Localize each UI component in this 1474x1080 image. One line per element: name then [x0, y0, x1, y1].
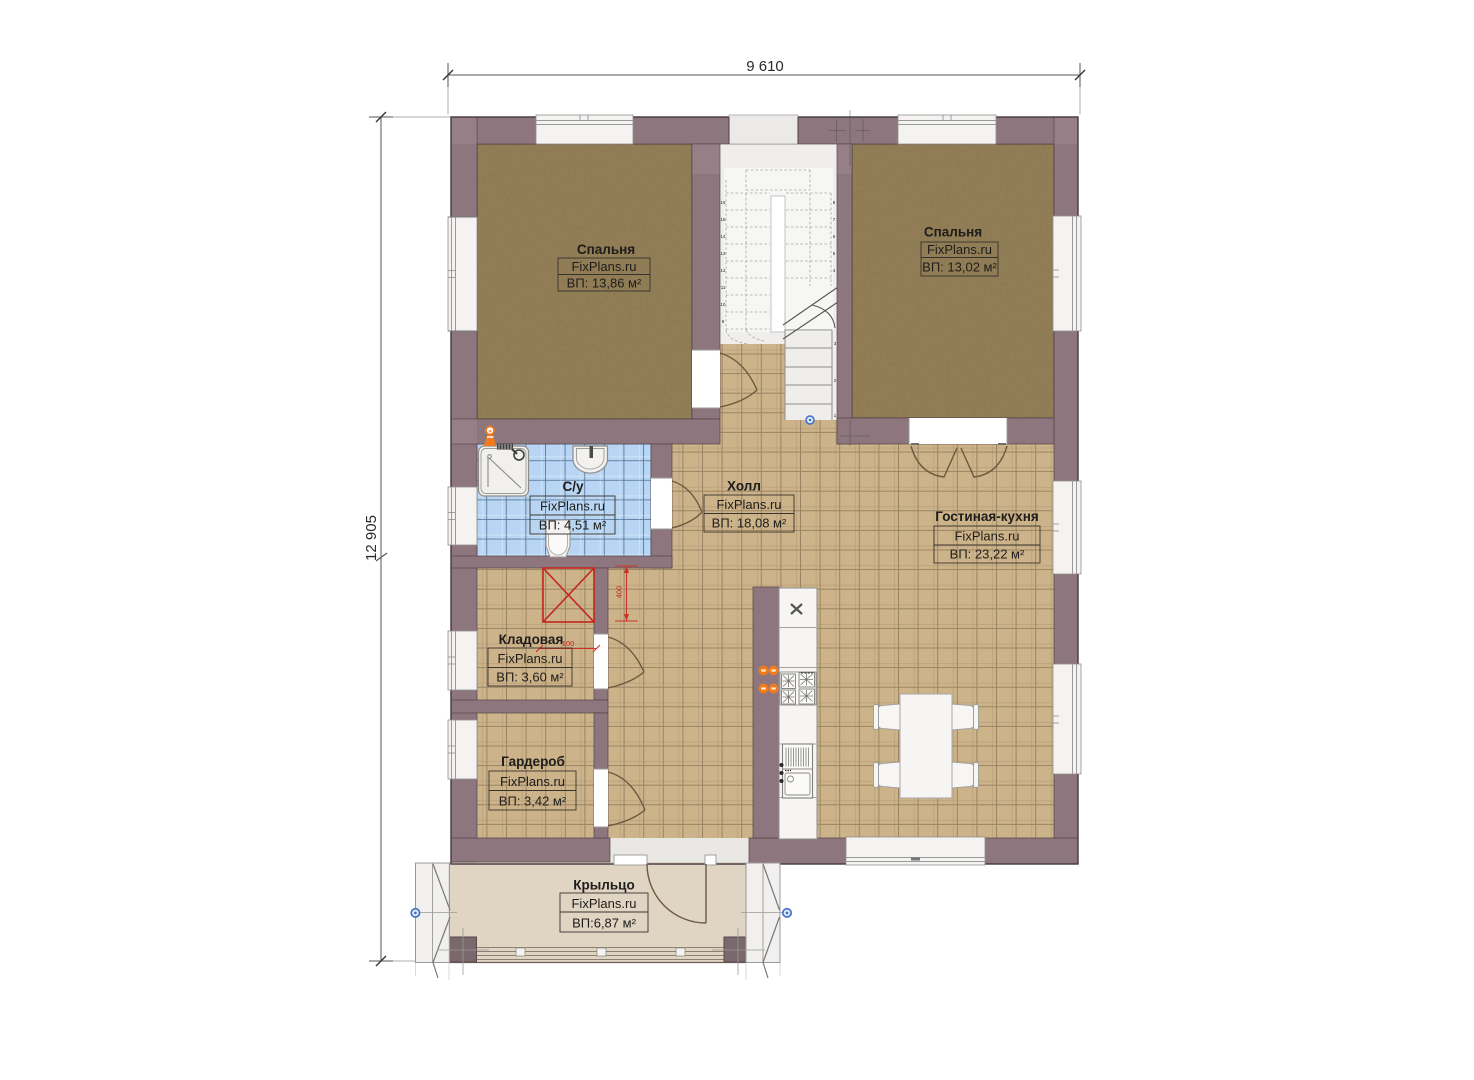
svg-text:С/у: С/у	[562, 479, 584, 494]
svg-text:9 610: 9 610	[746, 58, 784, 75]
svg-text:Крыльцо: Крыльцо	[573, 878, 634, 893]
svg-text:Холл: Холл	[727, 479, 761, 494]
svg-text:400: 400	[615, 586, 624, 599]
svg-text:14: 14	[721, 234, 726, 239]
svg-text:100: 100	[562, 639, 575, 648]
svg-text:12: 12	[721, 268, 726, 273]
svg-text:15: 15	[721, 217, 726, 222]
svg-text:FixPlans.ru: FixPlans.ru	[716, 497, 781, 512]
svg-text:FixPlans.ru: FixPlans.ru	[571, 896, 636, 911]
svg-text:FixPlans.ru: FixPlans.ru	[540, 499, 605, 514]
svg-text:ВП: 23,22 м²: ВП: 23,22 м²	[950, 547, 1025, 562]
svg-text:Гардероб: Гардероб	[501, 754, 565, 769]
svg-text:Спальня: Спальня	[577, 242, 635, 257]
svg-text:ВП: 3,42 м²: ВП: 3,42 м²	[499, 794, 567, 809]
svg-text:FixPlans.ru: FixPlans.ru	[500, 774, 565, 789]
svg-text:Спальня: Спальня	[924, 225, 982, 240]
svg-text:ВП:6,87 м²: ВП:6,87 м²	[572, 916, 636, 931]
svg-text:11: 11	[721, 285, 726, 290]
svg-text:16: 16	[721, 200, 726, 205]
svg-text:ВП: 4,51 м²: ВП: 4,51 м²	[539, 518, 607, 533]
svg-text:FixPlans.ru: FixPlans.ru	[927, 242, 992, 257]
svg-text:FixPlans.ru: FixPlans.ru	[571, 259, 636, 274]
svg-text:ВП: 18,08 м²: ВП: 18,08 м²	[712, 516, 787, 531]
svg-text:12 905: 12 905	[363, 515, 380, 561]
svg-text:ВП: 13,86 м²: ВП: 13,86 м²	[567, 276, 642, 291]
svg-text:ВП: 3,60 м²: ВП: 3,60 м²	[496, 670, 564, 685]
svg-text:Гостиная-кухня: Гостиная-кухня	[935, 509, 1038, 524]
svg-text:Кладовая: Кладовая	[499, 632, 564, 647]
svg-text:13: 13	[721, 251, 726, 256]
svg-text:10: 10	[721, 302, 726, 307]
svg-text:ВП: 13,02 м²: ВП: 13,02 м²	[922, 260, 997, 275]
svg-text:FixPlans.ru: FixPlans.ru	[954, 529, 1019, 544]
svg-text:FixPlans.ru: FixPlans.ru	[497, 651, 562, 666]
